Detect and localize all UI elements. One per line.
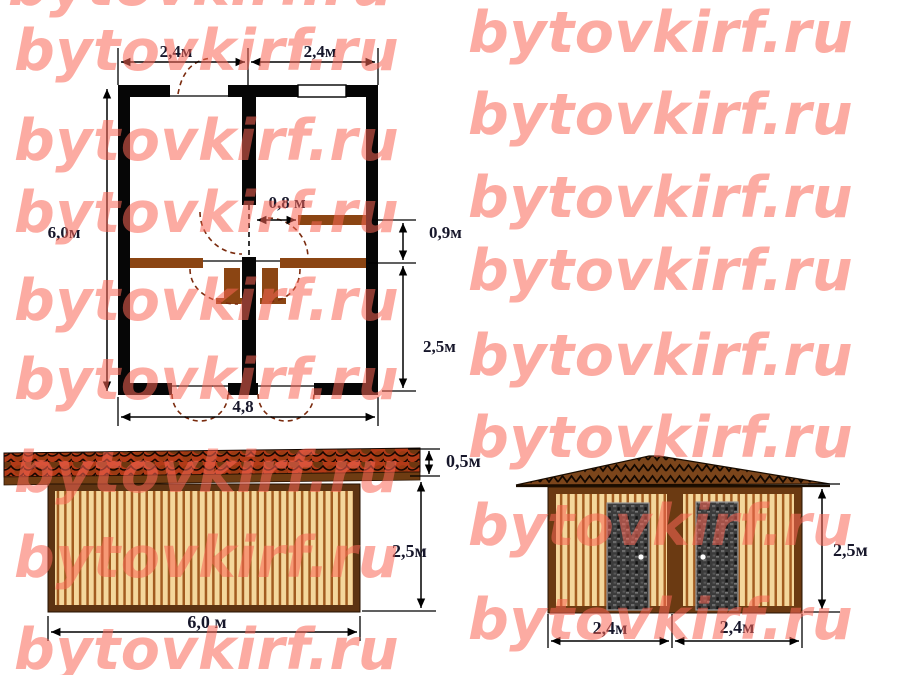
floor-plan-view: 2,4м 2,4м 6,0м 0,8 м 0,9м 2,5м 4,8 bbox=[48, 42, 463, 426]
window-symbol bbox=[298, 85, 346, 97]
front-roof-shingle-texture bbox=[516, 456, 830, 485]
dim-label-height: 6,0м bbox=[48, 223, 81, 242]
dim-label-side-length: 6,0 м bbox=[187, 612, 226, 632]
dim-label-door-width: 0,8 м bbox=[268, 193, 306, 212]
dim-label-corridor: 0,9м bbox=[429, 223, 462, 242]
side-elevation-view: 0,5м 2,5м 6,0 м bbox=[4, 448, 481, 641]
front-elevation-view: 2,5м 2,4м 2,4м bbox=[516, 456, 868, 648]
door-knob-right bbox=[700, 554, 706, 560]
dim-label-bay-right: 2,4м bbox=[720, 617, 755, 637]
floor-plan-walls bbox=[118, 85, 378, 395]
dim-label-front-wall-height: 2,5м bbox=[833, 540, 868, 560]
dim-label-side-wall-height: 2,5м bbox=[392, 541, 427, 561]
dim-label-width-right: 2,4м bbox=[304, 42, 337, 61]
dim-label-inner-width: 4,8 bbox=[232, 397, 253, 416]
technical-drawing: 2,4м 2,4м 6,0м 0,8 м 0,9м 2,5м 4,8 0,5м … bbox=[0, 0, 900, 675]
dim-label-room-depth: 2,5м bbox=[423, 337, 456, 356]
door-knob-left bbox=[638, 554, 644, 560]
dim-label-width-left: 2,4м bbox=[160, 42, 193, 61]
drawing-canvas: 2,4м 2,4м 6,0м 0,8 м 0,9м 2,5м 4,8 0,5м … bbox=[0, 0, 900, 675]
side-wall-planks bbox=[55, 491, 353, 605]
dim-label-bay-left: 2,4м bbox=[593, 618, 628, 638]
dim-label-roof-height: 0,5м bbox=[446, 451, 481, 471]
